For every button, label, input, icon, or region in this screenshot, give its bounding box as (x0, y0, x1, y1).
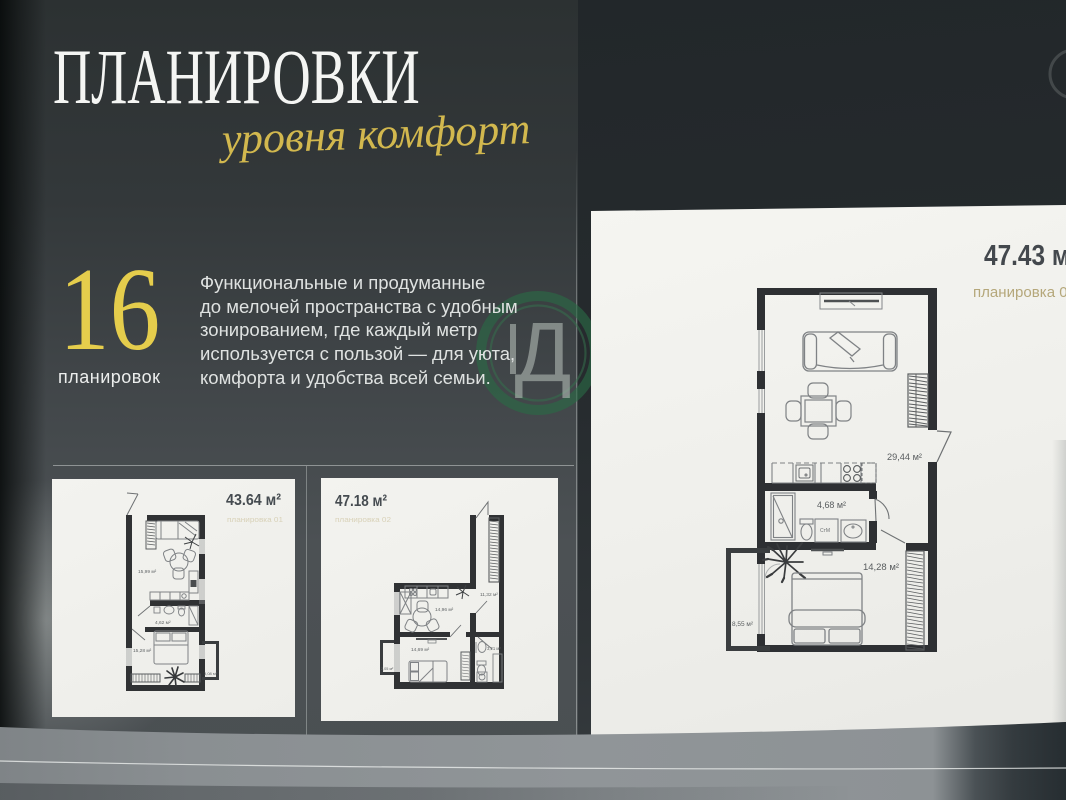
svg-text:43.64 м²: 43.64 м² (226, 492, 281, 509)
svg-text:2,05 м²: 2,05 м² (381, 667, 394, 671)
svg-text:3,08 м²: 3,08 м² (204, 671, 218, 676)
svg-text:47.43 м²: 47.43 м² (984, 240, 1066, 272)
svg-text:15,99 м²: 15,99 м² (138, 569, 157, 575)
svg-text:4,68 м²: 4,68 м² (817, 500, 846, 511)
svg-text:14,96 м²: 14,96 м² (435, 607, 454, 613)
svg-text:СтМ: СтМ (820, 528, 830, 534)
svg-text:планировка 01: планировка 01 (227, 515, 283, 524)
svg-text:3,21 м²: 3,21 м² (487, 646, 501, 651)
svg-text:29,44 м²: 29,44 м² (887, 452, 922, 463)
svg-text:14,69 м²: 14,69 м² (411, 647, 430, 653)
svg-text:4,62 м²: 4,62 м² (155, 620, 171, 626)
svg-text:планировка 03: планировка 03 (973, 284, 1066, 301)
svg-text:14,28 м²: 14,28 м² (863, 562, 899, 573)
svg-text:8,55 м²: 8,55 м² (732, 621, 753, 628)
svg-text:планировка 02: планировка 02 (335, 515, 391, 524)
svg-text:15,28 м²: 15,28 м² (133, 648, 152, 654)
svg-text:11,32 м²: 11,32 м² (480, 592, 498, 598)
svg-text:47.18 м²: 47.18 м² (335, 493, 387, 510)
